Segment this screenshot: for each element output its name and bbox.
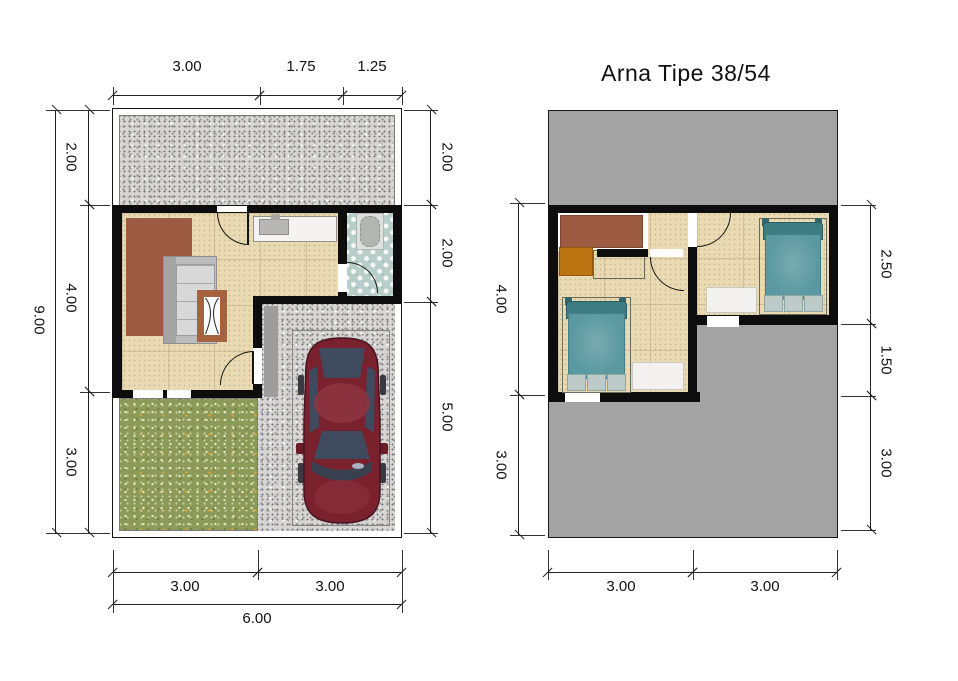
dimension-label: 3.00 xyxy=(750,578,779,595)
dimension-line xyxy=(113,604,402,605)
window xyxy=(167,390,191,398)
extension-line xyxy=(510,535,545,536)
extension-line xyxy=(80,205,110,206)
dimension-line xyxy=(88,392,89,533)
dimension-line xyxy=(430,302,431,533)
extension-line xyxy=(548,550,549,580)
dimension-label: 1.50 xyxy=(878,345,895,374)
bed-2-pillow xyxy=(804,295,823,312)
extension-line xyxy=(258,550,259,580)
extension-line xyxy=(260,87,261,105)
bed-2-rug xyxy=(706,287,757,313)
bed-1-rug xyxy=(632,362,684,390)
dimension-label: 9.00 xyxy=(31,305,48,334)
dimension-label: 2.00 xyxy=(439,142,456,171)
dimension-line xyxy=(870,396,871,530)
car-wheel xyxy=(298,463,304,483)
dimension-line xyxy=(258,572,402,573)
wall xyxy=(393,205,402,304)
car-windshield xyxy=(314,431,370,459)
dimension-label: 6.00 xyxy=(242,610,271,627)
extension-line xyxy=(343,87,344,105)
bathroom-door-opening xyxy=(338,264,347,292)
bed-1-pillow xyxy=(587,374,606,391)
dimension-label: 3.00 xyxy=(878,448,895,477)
dimension-label: 3.00 xyxy=(63,447,80,476)
dimension-label: 2.00 xyxy=(439,238,456,267)
bed-1-pillow xyxy=(567,374,586,391)
concrete-path xyxy=(264,306,278,397)
dimension-label: 5.00 xyxy=(439,402,456,431)
dimension-line xyxy=(870,205,871,324)
dimension-line xyxy=(55,110,56,533)
bedroom-2-door-opening xyxy=(688,213,697,247)
extension-line xyxy=(837,550,838,580)
table-pattern xyxy=(204,297,220,335)
dimension-label: 3.00 xyxy=(170,578,199,595)
car-badge xyxy=(352,463,364,469)
dimension-line xyxy=(518,395,519,535)
window xyxy=(565,392,600,402)
dimension-line xyxy=(88,110,89,205)
dimension-label: 2.00 xyxy=(63,142,80,171)
car-wheel xyxy=(298,375,304,395)
wall xyxy=(829,205,838,325)
car-hood-highlight xyxy=(314,480,370,514)
wall xyxy=(112,205,122,398)
toilet xyxy=(360,216,380,247)
bed-2-pillow xyxy=(764,295,783,312)
bed-1-body xyxy=(568,313,625,379)
front-yard-gravel xyxy=(119,115,395,206)
carport-door-opening xyxy=(253,348,262,384)
dimension-line xyxy=(260,95,343,96)
window xyxy=(133,390,163,398)
dimension-label: 1.75 xyxy=(286,58,315,75)
wall xyxy=(597,249,648,257)
dimension-line xyxy=(430,110,431,205)
dimension-label: 1.25 xyxy=(357,58,386,75)
bed-2-body xyxy=(765,234,821,300)
carport-door-leaf xyxy=(252,351,254,384)
extension-line xyxy=(80,392,110,393)
dimension-line xyxy=(113,572,258,573)
extension-line xyxy=(510,395,545,396)
rug-brown xyxy=(126,218,192,258)
dimension-label: 2.50 xyxy=(878,249,895,278)
bed-1-pillow xyxy=(607,374,626,391)
wall xyxy=(548,205,558,402)
stair-void xyxy=(560,215,643,248)
floor-plan-canvas: Arna Tipe 38/54 3.00 1.75 xyxy=(0,0,958,681)
extension-line xyxy=(113,87,114,105)
dimension-label: 3.00 xyxy=(315,578,344,595)
rug-brown xyxy=(126,256,164,336)
dimension-label: 4.00 xyxy=(63,283,80,312)
kitchen-sink xyxy=(259,219,289,235)
car-wheel xyxy=(380,463,386,483)
garden-grass xyxy=(119,398,258,531)
extension-line xyxy=(693,550,694,580)
page-title: Arna Tipe 38/54 xyxy=(601,60,771,87)
dimension-line xyxy=(693,572,837,573)
dimension-line xyxy=(343,95,402,96)
kitchen-faucet xyxy=(271,214,280,220)
window xyxy=(707,316,739,327)
extension-line xyxy=(510,203,545,204)
dimension-line xyxy=(548,572,693,573)
bed-2-pillow xyxy=(784,295,803,312)
sofa-back xyxy=(164,257,176,343)
extension-line xyxy=(402,87,403,105)
car-rear-window xyxy=(319,348,365,378)
dimension-line xyxy=(518,203,519,395)
dimension-label: 3.00 xyxy=(493,450,510,479)
dimension-line xyxy=(430,205,431,302)
front-door-leaf xyxy=(247,213,249,244)
dimension-label: 3.00 xyxy=(606,578,635,595)
wall xyxy=(253,296,402,304)
dimension-line xyxy=(113,95,260,96)
dimension-label: 3.00 xyxy=(172,58,201,75)
car-roof-highlight xyxy=(314,383,370,423)
dimension-label: 4.00 xyxy=(493,284,510,313)
dimension-line xyxy=(870,324,871,396)
coffee-table xyxy=(197,290,227,342)
desk-orange xyxy=(559,247,593,276)
dimension-line xyxy=(88,205,89,392)
car xyxy=(296,333,388,527)
car-wheel xyxy=(380,375,386,395)
front-door-opening xyxy=(216,205,248,213)
bedroom-1-door-opening xyxy=(650,249,683,257)
wall xyxy=(112,205,402,213)
